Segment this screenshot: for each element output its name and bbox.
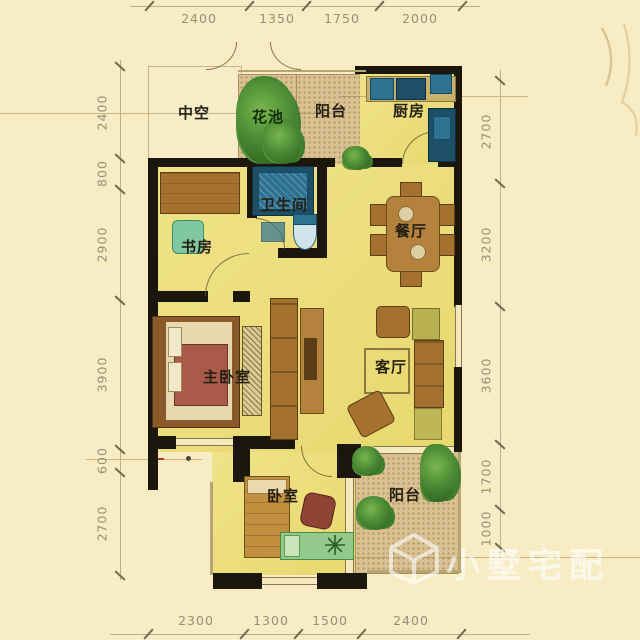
room-label-bedroom2: 卧室 xyxy=(260,489,306,505)
room-label-balcony-top: 阳台 xyxy=(308,104,354,120)
room-label-bathroom: 卫生间 xyxy=(250,198,318,214)
dim-chain-right xyxy=(500,70,501,554)
room-label-living: 客厅 xyxy=(366,360,416,376)
room-label-void: 中空 xyxy=(168,106,220,122)
room-label-study: 书房 xyxy=(174,240,220,256)
room-label-balcony-bottom: 阳台 xyxy=(382,488,428,504)
table-setting xyxy=(410,244,426,260)
dim-label-right-4: 1700 xyxy=(479,447,494,507)
wall xyxy=(210,482,213,575)
room-label-master-bedroom: 主卧室 xyxy=(192,370,262,386)
dining-chair xyxy=(438,204,455,226)
room-label-kitchen: 厨房 xyxy=(386,104,432,120)
dim-label-bottom-3: 1500 xyxy=(300,613,360,628)
wall xyxy=(148,291,208,302)
room-label-dining: 餐厅 xyxy=(388,224,434,240)
tv xyxy=(304,338,317,380)
partition-cabinet xyxy=(270,298,298,440)
window xyxy=(176,438,233,446)
wall xyxy=(317,166,327,258)
bed-pillow xyxy=(168,362,182,392)
plant-icon xyxy=(352,446,382,476)
dim-label-bottom-1: 2300 xyxy=(166,613,226,628)
dim-label-left-4: 3900 xyxy=(95,345,110,405)
wall xyxy=(454,66,462,307)
daybed-pillow xyxy=(284,535,300,557)
kitchen-stove xyxy=(396,78,426,100)
dining-chair xyxy=(370,204,387,226)
dim-label-left-2: 800 xyxy=(95,144,110,204)
door-arc xyxy=(270,42,301,70)
dim-label-top-3: 1750 xyxy=(312,11,372,26)
floor-cushion xyxy=(414,408,442,440)
toilet-tank xyxy=(293,214,317,225)
bath-mat xyxy=(261,222,285,242)
side-table xyxy=(412,308,440,340)
plant-icon xyxy=(342,146,370,170)
wall xyxy=(213,573,262,589)
kitchen-appliance xyxy=(430,74,452,94)
dim-chain-left xyxy=(120,60,121,580)
dim-label-bottom-2: 1300 xyxy=(241,613,301,628)
window xyxy=(262,577,317,585)
dining-chair xyxy=(438,234,455,256)
fan-icon xyxy=(324,534,346,556)
table-setting xyxy=(398,206,414,222)
kitchen-fixture xyxy=(433,116,451,140)
kitchen-sink xyxy=(370,78,394,100)
window xyxy=(455,305,462,367)
dim-label-right-3: 3600 xyxy=(479,346,494,406)
dining-chair xyxy=(400,270,422,287)
railing xyxy=(238,70,296,72)
dim-label-bottom-4: 2400 xyxy=(381,613,441,628)
sketch-marks xyxy=(580,20,640,140)
dim-label-top-2: 1350 xyxy=(247,11,307,26)
dim-label-left-6: 2700 xyxy=(95,494,110,554)
dim-label-top-1: 2400 xyxy=(169,11,229,26)
guide-dot xyxy=(186,456,191,461)
wall xyxy=(317,573,367,589)
railing xyxy=(296,70,366,72)
sofa xyxy=(414,340,444,408)
dim-label-right-1: 2700 xyxy=(479,102,494,162)
dim-chain-bottom xyxy=(110,634,530,635)
wall xyxy=(454,367,462,452)
dim-label-right-2: 3200 xyxy=(479,215,494,275)
dim-label-left-1: 2400 xyxy=(95,83,110,143)
cube-logo-icon xyxy=(386,531,442,587)
wall xyxy=(148,436,176,449)
watermark-text: 小墅宅配 xyxy=(446,538,610,587)
floor-plan-canvas: 中空 花池 阳台 厨房 卫生间 书房 餐厅 主卧室 客厅 卧室 阳台 2400 … xyxy=(0,0,640,640)
study-desk xyxy=(160,172,240,214)
dim-label-left-5: 600 xyxy=(95,431,110,491)
dining-chair xyxy=(370,234,387,256)
room-label-flowerbed: 花池 xyxy=(246,110,290,126)
dim-label-left-3: 2900 xyxy=(95,215,110,275)
armchair xyxy=(376,306,410,338)
dim-label-top-4: 2000 xyxy=(390,11,450,26)
bed-pillow xyxy=(168,327,182,357)
wall xyxy=(355,66,462,74)
